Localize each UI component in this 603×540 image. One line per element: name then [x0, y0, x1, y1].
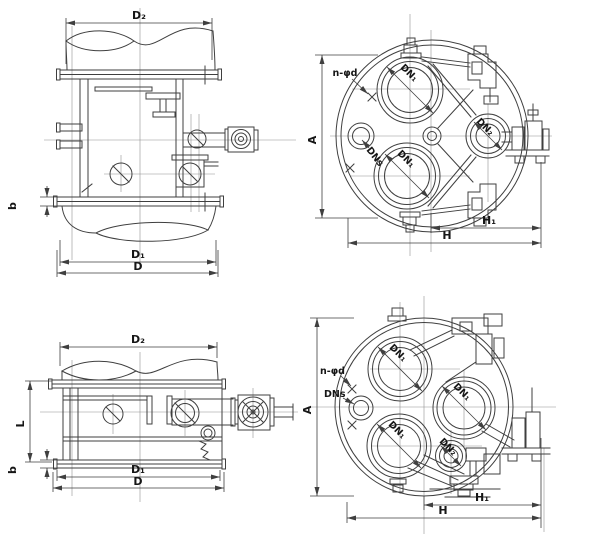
top-flange	[57, 69, 222, 80]
dim-d2-top: D₂	[66, 9, 212, 64]
centerlines	[308, 296, 556, 534]
centerlines	[40, 352, 298, 502]
nozzle-label-dn2: DN₂	[437, 436, 459, 458]
dim-label-b: b	[6, 202, 19, 210]
top-hardware	[388, 308, 504, 382]
side-outlet-assembly	[183, 127, 258, 152]
dim-label-h1: H₁	[475, 491, 489, 504]
bolt-hole-mark	[368, 93, 376, 101]
dim-d-bottom: D	[53, 472, 224, 492]
nozzle-dns	[349, 396, 373, 420]
internal-valves	[103, 399, 199, 427]
nozzle-dns: DNs	[348, 123, 386, 169]
bolt-hole-mark	[348, 385, 356, 393]
drain-valve-assembly	[172, 155, 218, 187]
bottom-flange	[54, 196, 224, 207]
dim-b-top: b	[6, 186, 57, 217]
nozzle-label-dn1-a: DN₁	[387, 342, 409, 364]
nozzle-label-dns: DNs	[364, 145, 386, 169]
vessel-body	[80, 79, 183, 197]
spring-valve	[199, 426, 215, 460]
dim-label-d2: D₂	[132, 9, 146, 22]
dim-h-top: H	[348, 218, 541, 248]
dim-label-d: D	[133, 475, 142, 488]
label-bolt-pattern: n-φd	[333, 68, 368, 94]
dim-label-d2: D₂	[131, 333, 145, 346]
pipe-break-top	[66, 28, 215, 70]
engineering-drawing-canvas: D₂ b D₁ D	[0, 0, 603, 540]
dim-label-h1: H₁	[482, 214, 496, 227]
view-top-plan: DN₁ DN₁ DNs DN₂	[306, 14, 552, 256]
dim-label-a: A	[301, 405, 314, 414]
dim-label-b: b	[6, 466, 19, 474]
dim-a-top: A	[306, 55, 378, 218]
dim-b-bottom: b	[6, 449, 57, 479]
bolt-pattern-label: n-φd	[333, 68, 358, 79]
dim-label-l: L	[14, 420, 27, 427]
dim-d2-bottom: D₂	[60, 333, 217, 366]
view-bottom-plan: DN₁ DN₁ DN₁ DN₂	[301, 296, 556, 534]
nozzle-label-dn1-b: DN₁	[451, 381, 473, 403]
dim-label-a: A	[306, 135, 319, 144]
view-bottom-elevation: D₂ L b D₁ D	[6, 333, 298, 502]
dim-l: L	[14, 381, 52, 462]
label-bolt-pattern: n-φd	[320, 366, 351, 386]
dim-label-h: H	[438, 504, 447, 517]
dim-label-d: D	[133, 260, 142, 273]
view-top-elevation: D₂ b D₁ D	[6, 8, 296, 277]
nozzle-label-dn1-c: DN₁	[386, 419, 408, 441]
drawing-svg: D₂ b D₁ D	[0, 0, 603, 540]
bolt-hole-mark	[348, 421, 356, 429]
pipe-break-bottom	[62, 206, 216, 241]
dim-label-h: H	[442, 229, 451, 242]
nozzle-label-dns: DNs	[324, 389, 346, 400]
actuator-right	[482, 388, 550, 461]
bolt-pattern-label: n-φd	[320, 366, 345, 377]
left-stub-nozzles	[57, 123, 83, 149]
